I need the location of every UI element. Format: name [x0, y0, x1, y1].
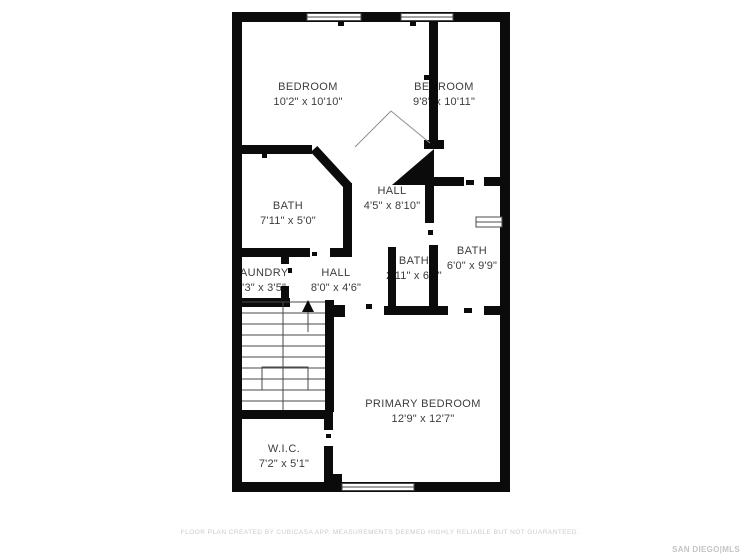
room-name: BATH [447, 244, 497, 259]
room-name: BEDROOM [413, 80, 475, 95]
room-dimensions: 8'0" x 4'6" [311, 281, 361, 296]
room-dimensions: 4'5" x 8'10" [364, 199, 421, 214]
mls-brand-logo: SAN DIEGO|MLS [672, 545, 740, 554]
room-label-bath-right: BATH 6'0" x 9'9" [447, 244, 497, 274]
room-dimensions: 10'2" x 10'10" [273, 95, 342, 110]
room-label-laundry: LAUNDRY 3'3" x 3'5" [233, 266, 288, 296]
room-dimensions: 7'2" x 5'1" [259, 457, 309, 472]
room-label-bedroom-2: BEDROOM 9'8" x 10'11" [413, 80, 475, 110]
room-name: HALL [311, 266, 361, 281]
room-dimensions: 3'3" x 3'5" [233, 281, 288, 296]
room-name: W.I.C. [259, 442, 309, 457]
room-label-hall-upper: HALL 4'5" x 8'10" [364, 184, 421, 214]
staircase [242, 302, 325, 410]
room-name: LAUNDRY [233, 266, 288, 281]
angled-wall [392, 149, 434, 185]
room-label-wic: W.I.C. 7'2" x 5'1" [259, 442, 309, 472]
room-name: HALL [364, 184, 421, 199]
room-dimensions: 7'11" x 5'0" [260, 214, 316, 229]
room-label-bedroom-1: BEDROOM 10'2" x 10'10" [273, 80, 342, 110]
floor-plan-graphic [0, 0, 747, 560]
room-name: BATH [260, 199, 316, 214]
room-dimensions: 6'0" x 9'9" [447, 259, 497, 274]
room-label-bath-middle: BATH 2'11" x 6'6" [386, 254, 442, 284]
window [401, 14, 453, 21]
room-dimensions: 9'8" x 10'11" [413, 95, 475, 110]
room-name: PRIMARY BEDROOM [365, 397, 481, 412]
room-label-hall-lower: HALL 8'0" x 4'6" [311, 266, 361, 296]
window [307, 14, 361, 21]
up-arrow-icon [302, 300, 314, 312]
room-dimensions: 12'9" x 12'7" [365, 412, 481, 427]
footer-disclaimer: FLOOR PLAN CREATED BY CUBICASA APP. MEAS… [181, 529, 579, 536]
room-name: BATH [386, 254, 442, 269]
room-label-bath-left: BATH 7'11" x 5'0" [260, 199, 316, 229]
bath-niche [476, 217, 502, 227]
door-swing-lines [355, 111, 430, 147]
window [342, 484, 414, 491]
floor-plan-page: BEDROOM 10'2" x 10'10" BEDROOM 9'8" x 10… [0, 0, 747, 560]
room-label-primary-bedroom: PRIMARY BEDROOM 12'9" x 12'7" [365, 397, 481, 427]
room-dimensions: 2'11" x 6'6" [386, 269, 442, 284]
room-name: BEDROOM [273, 80, 342, 95]
